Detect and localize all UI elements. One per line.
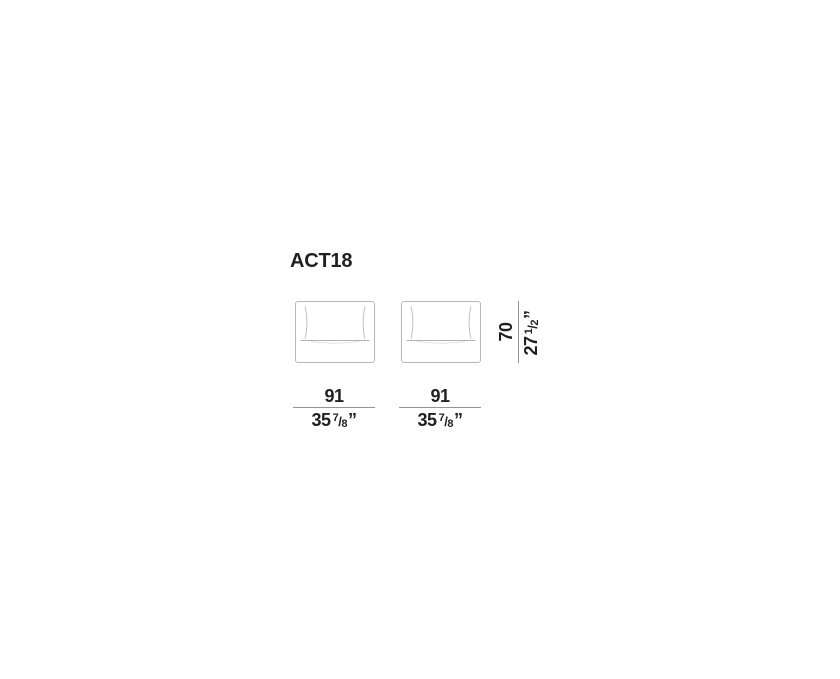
width-dimension-2: 91 357/8”: [399, 387, 481, 431]
width-1-inch-value: 357/8”: [293, 408, 375, 431]
inch-quote: ”: [521, 311, 541, 320]
inch-denominator: 2: [529, 320, 541, 326]
cushion-left-edge: [305, 307, 307, 340]
cushion-right-edge: [469, 307, 471, 340]
inch-whole: 35: [312, 410, 331, 430]
cushion-left-edge: [411, 307, 413, 340]
width-2-cm-value: 91: [399, 387, 481, 406]
cushion-right-edge: [363, 307, 365, 340]
height-inch-value: 271/2”: [520, 302, 544, 364]
furniture-outline: [402, 302, 481, 363]
furniture-drawing-2: [401, 301, 481, 363]
inch-numerator: 1: [523, 329, 535, 335]
drawing-canvas: ACT18 91 357/8” 91 357/8” 70 271/: [0, 0, 840, 679]
width-dimension-1: 91 357/8”: [293, 387, 375, 431]
width-1-cm-value: 91: [293, 387, 375, 406]
seat-sag-line: [311, 342, 359, 344]
inch-whole: 35: [418, 410, 437, 430]
furniture-front-view-1: [295, 301, 375, 368]
seat-sag-line: [417, 342, 465, 344]
furniture-outline: [296, 302, 375, 363]
width-2-inch-value: 357/8”: [399, 408, 481, 431]
furniture-drawing-1: [295, 301, 375, 363]
product-code: ACT18: [290, 250, 352, 273]
inch-denominator: 8: [447, 418, 453, 430]
inch-quote: ”: [454, 410, 463, 430]
inch-quote: ”: [348, 410, 357, 430]
height-divider-line: [518, 301, 519, 363]
inch-denominator: 8: [341, 418, 347, 430]
height-cm-value: 70: [496, 301, 516, 363]
furniture-front-view-2: [401, 301, 481, 368]
inch-slash: /: [525, 326, 540, 329]
inch-whole: 27: [521, 336, 541, 355]
